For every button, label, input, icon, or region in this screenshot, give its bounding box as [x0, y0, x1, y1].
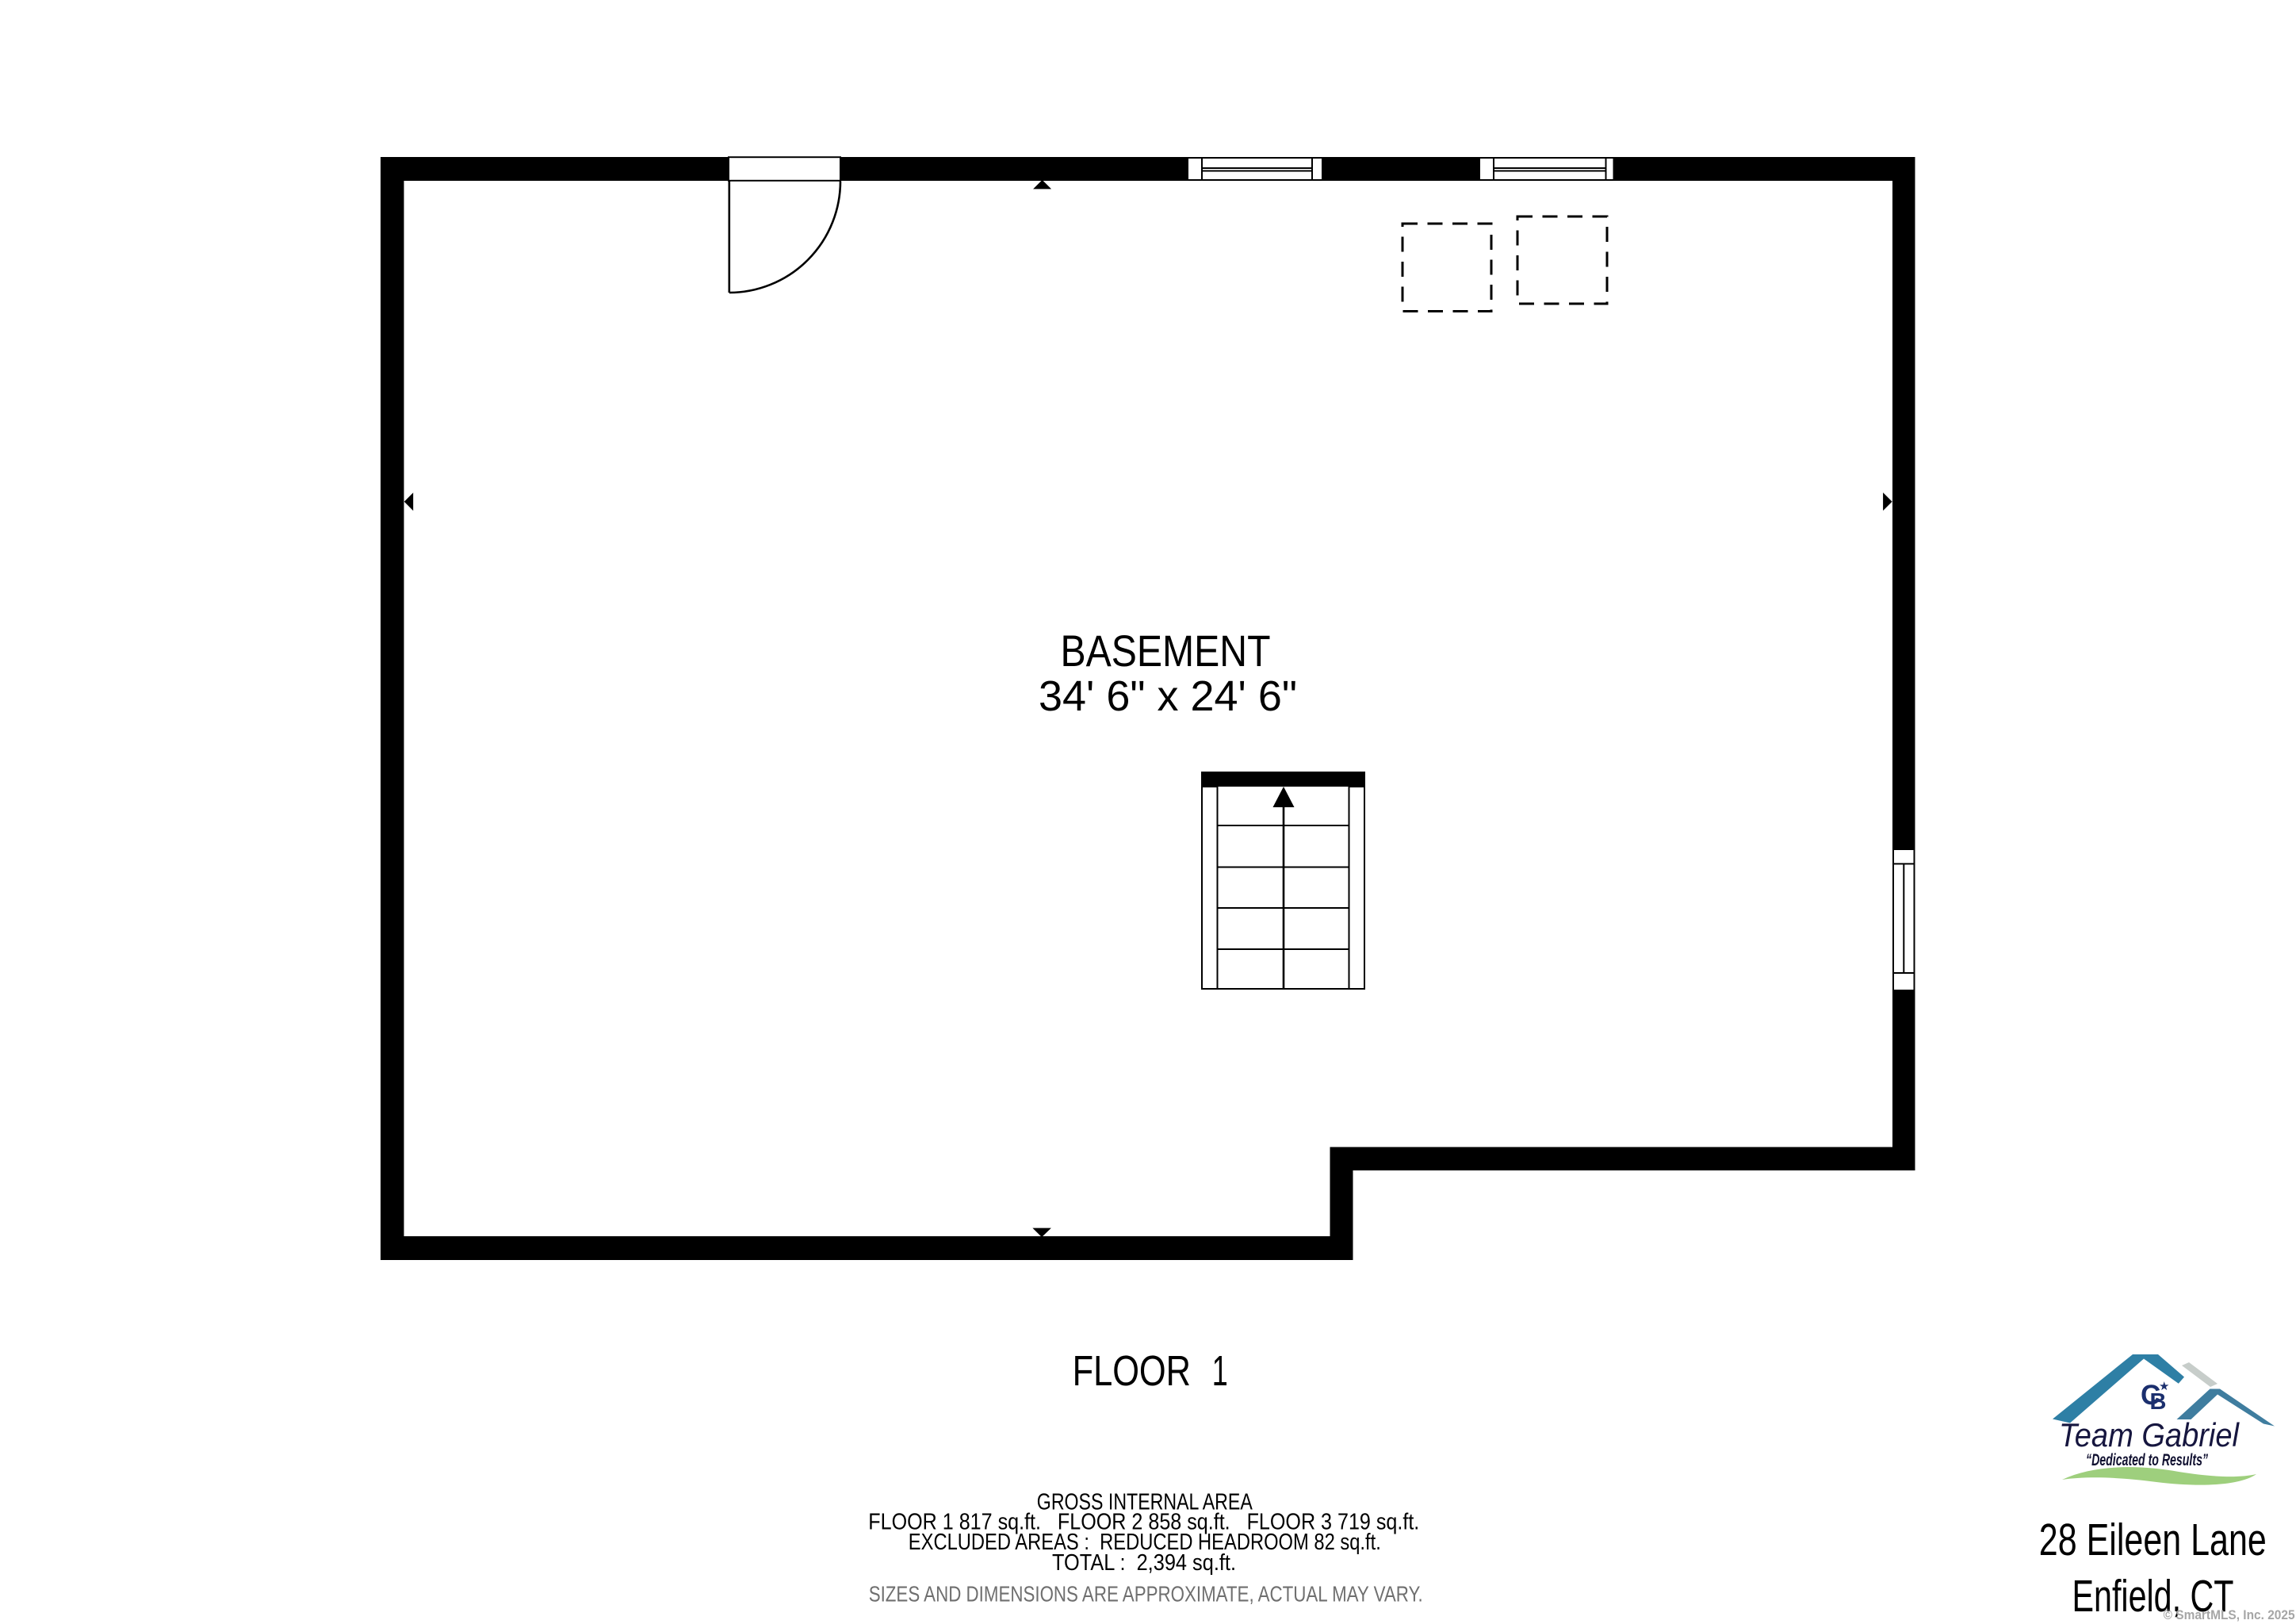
svg-text:28 Eileen Lane: 28 Eileen Lane — [2039, 1515, 2267, 1565]
svg-text:“Dedicated to Results”: “Dedicated to Results” — [2086, 1451, 2208, 1469]
svg-text:BASEMENT: BASEMENT — [1061, 626, 1271, 676]
svg-text:Team Gabriel: Team Gabriel — [2059, 1416, 2240, 1454]
svg-text:1: 1 — [1212, 1347, 1228, 1395]
svg-text:★: ★ — [2159, 1380, 2169, 1393]
svg-text:© SmartMLS, Inc. 2025: © SmartMLS, Inc. 2025 — [2164, 1608, 2295, 1622]
svg-text:34' 6" x 24' 6": 34' 6" x 24' 6" — [1039, 672, 1297, 720]
svg-text:SIZES AND DIMENSIONS ARE APPRO: SIZES AND DIMENSIONS ARE APPROXIMATE, AC… — [869, 1582, 1423, 1607]
svg-text:FLOOR: FLOOR — [1073, 1347, 1191, 1395]
svg-text:TOTAL : 2,394 sq.ft.: TOTAL : 2,394 sq.ft. — [1052, 1550, 1236, 1576]
